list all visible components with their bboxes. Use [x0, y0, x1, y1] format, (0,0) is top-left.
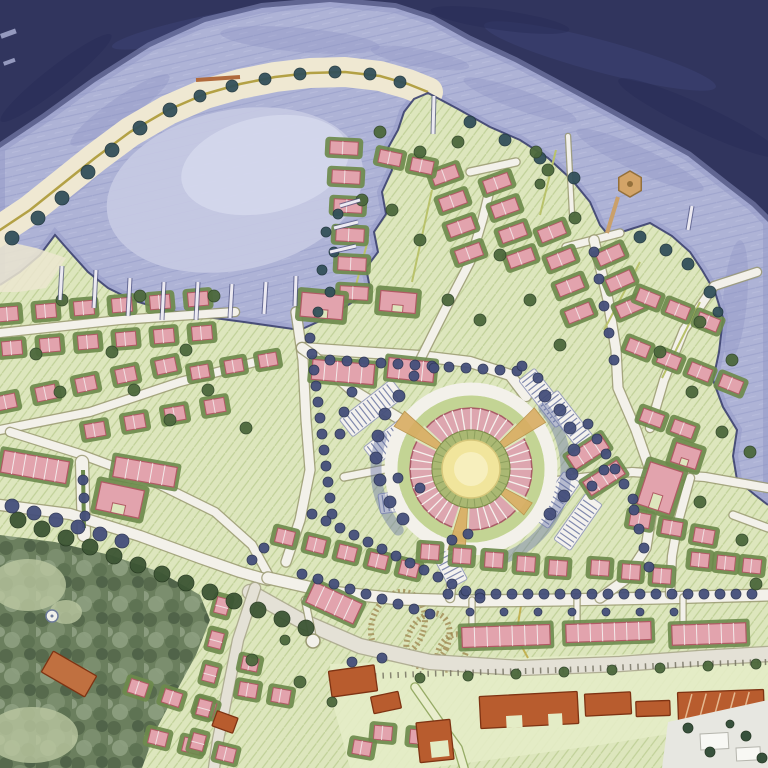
tree — [589, 247, 599, 257]
tree — [726, 354, 738, 366]
tree — [409, 604, 419, 614]
tree — [246, 654, 258, 666]
dock — [128, 278, 130, 316]
house — [511, 552, 541, 577]
tree — [494, 249, 506, 261]
tree — [654, 346, 666, 358]
tree — [79, 493, 89, 503]
large-house — [374, 285, 422, 319]
tree — [495, 365, 505, 375]
tree — [463, 671, 473, 681]
tree — [294, 68, 306, 80]
tree — [333, 209, 343, 219]
house — [186, 321, 218, 346]
tree — [34, 521, 50, 537]
tree — [731, 589, 741, 599]
master-plan-map — [0, 0, 768, 768]
house — [711, 551, 741, 576]
tree — [130, 557, 146, 573]
tree — [154, 566, 170, 582]
tree — [321, 227, 331, 237]
tree — [726, 720, 734, 728]
tree — [569, 212, 581, 224]
tree — [535, 179, 545, 189]
tree — [683, 723, 693, 733]
tree — [164, 414, 176, 426]
tree — [444, 362, 454, 372]
tree — [461, 586, 471, 596]
tree — [5, 231, 19, 245]
tree — [359, 357, 369, 367]
tree — [604, 328, 614, 338]
tree — [379, 408, 391, 420]
tree — [394, 76, 406, 88]
tree — [105, 143, 119, 157]
house — [616, 560, 646, 585]
tree — [568, 172, 580, 184]
tree — [313, 574, 323, 584]
rowhouse-bar — [458, 620, 555, 651]
tree — [639, 543, 649, 553]
tree — [592, 434, 602, 444]
tree — [478, 364, 488, 374]
tree — [317, 265, 327, 275]
house — [106, 293, 138, 318]
tree — [499, 134, 511, 146]
tree — [317, 429, 327, 439]
dock — [196, 282, 198, 320]
tree — [715, 589, 725, 599]
tree — [694, 316, 706, 328]
commercial-building — [479, 691, 579, 728]
tree — [106, 346, 118, 358]
tree — [347, 387, 357, 397]
tree — [386, 204, 398, 216]
tree — [443, 589, 453, 599]
commercial-building — [636, 700, 671, 716]
tree — [297, 569, 307, 579]
tree — [599, 301, 609, 311]
tree — [342, 356, 352, 366]
tree — [372, 430, 384, 442]
tree — [554, 404, 566, 416]
tree — [559, 667, 569, 677]
tree — [619, 479, 629, 489]
tree — [534, 608, 542, 616]
tree — [564, 422, 576, 434]
tree — [609, 355, 619, 365]
tree — [716, 426, 728, 438]
tree — [31, 211, 45, 225]
tree — [377, 653, 387, 663]
tree — [447, 535, 457, 545]
tree — [466, 608, 474, 616]
tree — [363, 537, 373, 547]
tree — [128, 384, 140, 396]
building-notch — [430, 740, 450, 758]
house — [447, 544, 477, 569]
map-canvas — [0, 0, 768, 768]
tree — [115, 534, 129, 548]
tree — [704, 286, 716, 298]
tree — [55, 191, 69, 205]
house — [72, 330, 104, 355]
tree — [163, 103, 177, 117]
dock — [162, 282, 164, 320]
tree — [80, 511, 90, 521]
tree — [294, 676, 306, 688]
tree — [81, 165, 95, 179]
building-notch — [506, 715, 523, 728]
tree — [686, 386, 698, 398]
tree — [180, 344, 192, 356]
tree — [5, 499, 19, 513]
dock — [60, 266, 62, 300]
tree — [247, 555, 257, 565]
tree — [757, 753, 767, 763]
tree — [30, 348, 42, 360]
existing-building — [700, 733, 729, 750]
tree — [660, 244, 672, 256]
house — [332, 253, 371, 276]
tree — [27, 506, 41, 520]
tree — [544, 508, 556, 520]
house — [0, 302, 24, 327]
tree — [226, 593, 242, 609]
tree — [307, 349, 317, 359]
tree — [364, 68, 376, 80]
tree — [736, 534, 748, 546]
house — [737, 554, 767, 579]
tree — [747, 589, 757, 599]
tree — [409, 371, 419, 381]
tree — [321, 516, 331, 526]
tree — [311, 381, 321, 391]
tree — [309, 365, 319, 375]
tree — [651, 589, 661, 599]
tree — [305, 333, 315, 343]
tree — [202, 584, 218, 600]
tree — [329, 66, 341, 78]
tree — [500, 608, 508, 616]
tree — [667, 589, 677, 599]
tree — [327, 697, 337, 707]
tree — [349, 530, 359, 540]
tree — [376, 358, 386, 368]
tree — [517, 361, 527, 371]
tree — [71, 520, 85, 534]
tree — [414, 234, 426, 246]
tree — [644, 562, 654, 572]
tree — [507, 589, 517, 599]
tree — [491, 589, 501, 599]
tree — [628, 494, 638, 504]
tree — [405, 558, 415, 568]
tree — [240, 422, 252, 434]
tree — [329, 579, 339, 589]
tree — [259, 543, 269, 553]
tree — [393, 359, 403, 369]
tree — [82, 539, 98, 555]
tree — [315, 413, 325, 423]
tree — [587, 481, 597, 491]
tree — [636, 608, 644, 616]
tree — [134, 290, 146, 302]
tree — [601, 449, 611, 459]
tree — [452, 136, 464, 148]
commercial-building — [584, 692, 631, 716]
house — [324, 137, 363, 160]
tree — [391, 551, 401, 561]
house — [543, 556, 573, 581]
tree — [524, 294, 536, 306]
tree — [705, 747, 715, 757]
tree — [751, 659, 761, 669]
rowhouse-bar — [668, 619, 751, 650]
tree — [313, 397, 323, 407]
house — [148, 324, 180, 349]
tree — [194, 90, 206, 102]
tree — [511, 669, 521, 679]
dock — [230, 284, 232, 318]
tree — [634, 231, 646, 243]
tree — [414, 146, 426, 158]
tree — [558, 490, 570, 502]
tree — [250, 602, 266, 618]
tree — [568, 444, 580, 456]
tree — [539, 589, 549, 599]
tree — [58, 530, 74, 546]
tree — [447, 579, 457, 589]
tree — [323, 477, 333, 487]
tree — [226, 80, 238, 92]
tree — [533, 373, 543, 383]
tree — [280, 635, 290, 645]
tree — [599, 465, 609, 475]
tree — [655, 663, 665, 673]
tree — [178, 575, 194, 591]
tree — [93, 527, 107, 541]
tree — [347, 657, 357, 667]
tree — [325, 355, 335, 365]
tree — [683, 589, 693, 599]
tree — [682, 258, 694, 270]
tree — [335, 429, 345, 439]
tree — [463, 529, 473, 539]
tree — [699, 589, 709, 599]
tree — [703, 661, 713, 671]
tree — [49, 513, 63, 527]
tree — [425, 609, 435, 619]
tree — [393, 390, 405, 402]
tree — [566, 468, 578, 480]
tree — [325, 493, 335, 503]
dock — [264, 282, 266, 314]
tree — [319, 445, 329, 455]
commercial-building — [328, 665, 377, 697]
tree — [374, 126, 386, 138]
tree — [78, 475, 88, 485]
tree — [335, 523, 345, 533]
tree — [410, 360, 420, 370]
tree — [133, 121, 147, 135]
tree — [602, 608, 610, 616]
tree — [610, 464, 620, 474]
tree — [568, 608, 576, 616]
tree — [619, 589, 629, 599]
tree — [259, 73, 271, 85]
dock — [433, 96, 434, 134]
tree — [274, 611, 290, 627]
house — [585, 556, 615, 581]
tree — [370, 452, 382, 464]
tree — [415, 673, 425, 683]
tree — [571, 589, 581, 599]
tree — [202, 384, 214, 396]
tree — [361, 589, 371, 599]
tree — [594, 274, 604, 284]
tree — [298, 620, 314, 636]
tree — [542, 164, 554, 176]
tree — [433, 572, 443, 582]
tree — [670, 608, 678, 616]
tree — [321, 461, 331, 471]
tree — [377, 594, 387, 604]
house — [479, 548, 509, 573]
tree — [419, 565, 429, 575]
tree — [54, 386, 66, 398]
tree — [475, 593, 485, 603]
tree — [713, 307, 723, 317]
house — [415, 540, 445, 565]
tree — [397, 513, 409, 525]
tree — [741, 731, 751, 741]
tree — [208, 290, 220, 302]
tree — [523, 589, 533, 599]
tree — [106, 548, 122, 564]
tree — [554, 339, 566, 351]
tree — [634, 524, 644, 534]
tree — [607, 665, 617, 675]
tree — [307, 509, 317, 519]
tree — [374, 474, 386, 486]
tree — [393, 599, 403, 609]
tree — [429, 363, 439, 373]
tree — [325, 287, 335, 297]
house — [0, 336, 28, 361]
tree — [603, 589, 613, 599]
tree — [464, 116, 476, 128]
tree — [583, 419, 593, 429]
house — [685, 548, 715, 573]
building-notch — [548, 713, 563, 728]
tree — [555, 589, 565, 599]
rowhouse-bar — [562, 617, 656, 646]
tree — [10, 512, 26, 528]
dock — [295, 276, 296, 306]
tree — [415, 483, 425, 493]
tree — [750, 578, 762, 590]
tree — [474, 314, 486, 326]
tree — [442, 294, 454, 306]
tree — [461, 363, 471, 373]
tree — [393, 473, 403, 483]
tree — [377, 544, 387, 554]
tree — [629, 505, 639, 515]
tree — [539, 390, 551, 402]
tree — [384, 496, 396, 508]
house — [326, 166, 365, 189]
large-house — [295, 287, 350, 325]
tree — [345, 584, 355, 594]
tree — [339, 407, 349, 417]
tree — [530, 146, 542, 158]
tree — [635, 589, 645, 599]
dock — [94, 270, 96, 308]
tree — [313, 307, 323, 317]
tree — [744, 446, 756, 458]
tree — [694, 496, 706, 508]
tree — [587, 589, 597, 599]
